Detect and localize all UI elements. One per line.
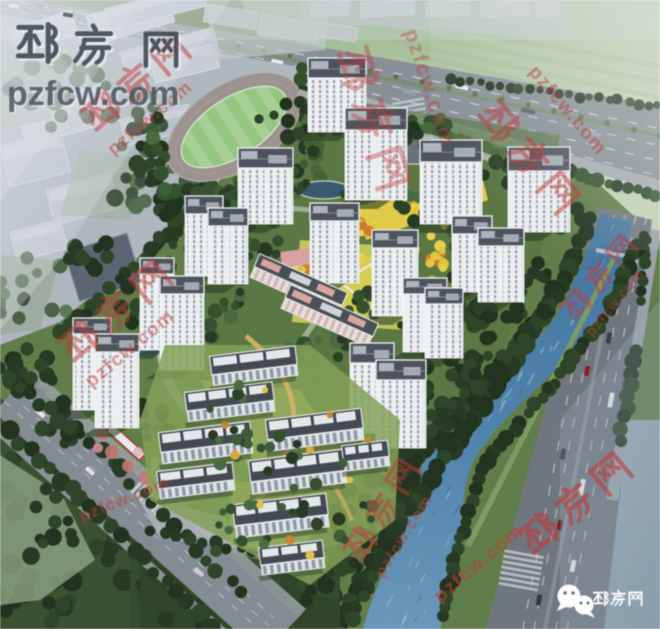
svg-text:pzfcw.com: pzfcw.com (7, 75, 180, 113)
